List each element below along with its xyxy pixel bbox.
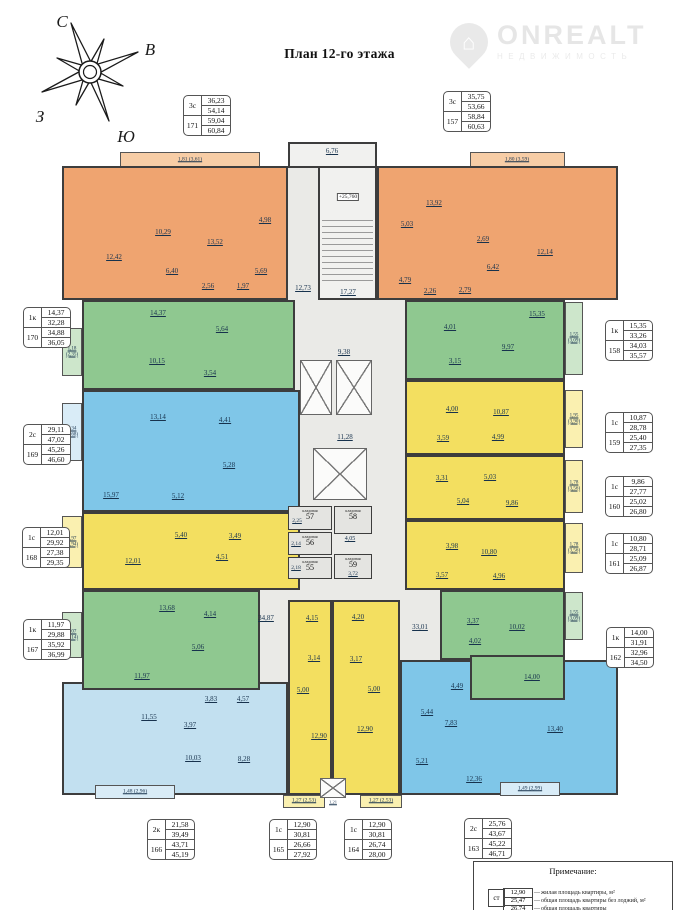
room-area-label: 9,86 (506, 499, 518, 507)
apartment-table-169: 2с169 29,1147,0245,2646,60 (23, 424, 71, 465)
watermark-subtitle: НЕДВИЖИМОСТЬ (497, 52, 647, 61)
area-value: 12,01 (41, 528, 69, 538)
area-value: 25,40 (624, 433, 652, 443)
storage-number: 58 (335, 513, 371, 521)
area-value: 35,75 (462, 92, 490, 102)
area-value: 27,92 (288, 850, 316, 859)
room-area-label: 4,51 (216, 553, 228, 561)
apartment-type: 1с (270, 820, 287, 840)
room-area-label: 3,17 (350, 655, 362, 663)
room-area-label: 11,28 (337, 433, 353, 441)
area-value: 45,22 (483, 839, 511, 849)
floor-plan: кладовая 57 кладовая 58 кладовая 56 клад… (60, 140, 620, 808)
apartment-type: 1к (24, 620, 41, 640)
apartment-table-158: 1к158 15,3533,2634,0335,57 (605, 320, 653, 361)
room-area-label: 4,20 (352, 613, 364, 621)
balcony-area-label: 1,27 (2,53) (292, 798, 316, 804)
room-area-label: 4,98 (259, 216, 271, 224)
room-area-label: 4,02 (469, 637, 481, 645)
area-value: 29,92 (41, 538, 69, 548)
balcony-area-label: 1,95 (3,90) (564, 414, 584, 425)
stair-treads (322, 220, 373, 286)
apartment-unit-170 (82, 300, 295, 390)
apartment-number: 171 (184, 116, 201, 135)
area-value: 35,57 (624, 351, 652, 360)
room-area-label: 5,21 (416, 757, 428, 765)
area-value: 28,78 (624, 423, 652, 433)
apartment-table-171: 3с171 36,2354,1459,0460,84 (183, 95, 231, 136)
area-value: 31,91 (625, 638, 653, 648)
apartment-number: 158 (606, 341, 623, 360)
area-value: 47,02 (42, 435, 70, 445)
room-area-label: 2,56 (202, 282, 214, 290)
apartment-table-165: 1с165 12,9030,8126,6627,92 (269, 819, 317, 860)
apartment-type: 1с (345, 820, 362, 840)
balcony-area-label: 1,80 (3,59) (505, 157, 529, 163)
room-area-label: 4,41 (219, 416, 231, 424)
area-value: 10,80 (624, 534, 652, 544)
balcony-area-label: 1,27 (2,53) (369, 798, 393, 804)
room-area-label: 2,79 (459, 286, 471, 294)
apartment-type: 1с (23, 528, 40, 548)
room-area-label: 2,25 (292, 518, 302, 524)
room-area-label: 14,37 (150, 309, 166, 317)
room-area-label: 6,42 (487, 263, 499, 271)
balcony-area-label: 1,81 (3,61) (178, 157, 202, 163)
room-area-label: 10,80 (481, 548, 497, 556)
room-area-label: 15,35 (529, 310, 545, 318)
area-value: 25,09 (624, 554, 652, 564)
room-area-label: 5,69 (255, 267, 267, 275)
room-area-label: 6,40 (166, 267, 178, 275)
room-area-label: 5,03 (401, 220, 413, 228)
area-value: 36,05 (42, 338, 70, 347)
room-area-label: 2,69 (477, 235, 489, 243)
apartment-number: 169 (24, 445, 41, 464)
area-value: 28,00 (363, 850, 391, 859)
apartment-table-160: 1с160 9,8627,7725,0226,80 (605, 476, 653, 517)
balcony-area-label: 1,49 (2,99) (518, 786, 542, 792)
apartment-table-170: 1к170 14,3732,2834,8836,05 (23, 307, 71, 348)
room-area-label: 5,06 (192, 643, 204, 651)
area-value: 26,87 (624, 564, 652, 573)
room-area-label: 11,55 (141, 713, 157, 721)
balcony-area-label: 1,55 (3,09) (564, 611, 584, 622)
area-value: 30,81 (288, 830, 316, 840)
note-label: общая площадь квартиры без лоджий, м² (541, 898, 646, 904)
room-area-label: 2,18 (291, 565, 301, 571)
area-value: 53,66 (462, 102, 490, 112)
compass-rose: С В З Ю (10, 0, 170, 145)
elevator-shaft-2 (336, 360, 372, 415)
room-area-label: 4,15 (306, 614, 318, 622)
area-value: 34,88 (42, 328, 70, 338)
area-value: 28,71 (624, 544, 652, 554)
apartment-unit-157 (377, 166, 618, 300)
area-value: 36,23 (202, 96, 230, 106)
room-area-label: 8,28 (238, 755, 250, 763)
apartment-number: 160 (606, 497, 623, 516)
room-area-label: 34,87 (258, 614, 274, 622)
room-area-label: 7,83 (445, 719, 457, 727)
area-value: 32,28 (42, 318, 70, 328)
room-area-label: 13,14 (150, 413, 166, 421)
note-label: жилая площадь квартиры, м² (541, 890, 615, 896)
area-value: 9,86 (624, 477, 652, 487)
note-row: 26,74 — общая площадь квартиры (503, 905, 646, 910)
apartment-unit-165 (288, 600, 332, 795)
room-area-label: 3,83 (205, 695, 217, 703)
room-area-label: 3,31 (436, 474, 448, 482)
floor-plan-page: С В З Ю План 12-го этажа ⌂ ONREALT НЕДВИ… (0, 0, 679, 910)
house-icon: ⌂ (462, 31, 475, 53)
room-area-label: 15,97 (103, 491, 119, 499)
area-value: 10,87 (624, 413, 652, 423)
compass-west-label: З (36, 107, 45, 126)
apartment-number: 167 (24, 640, 41, 659)
room-area-label: 5,40 (175, 531, 187, 539)
balcony-area-label: 1,18 (2,35) (62, 347, 82, 358)
area-value: 33,26 (624, 331, 652, 341)
room-area-label: 3,72 (348, 571, 358, 577)
area-value: 54,14 (202, 106, 230, 116)
room-area-label: 12,36 (466, 775, 482, 783)
room-area-label: 12,14 (537, 248, 553, 256)
apartment-type: 2с (24, 425, 41, 445)
leader-arrow: — (534, 906, 540, 910)
area-value: 34,03 (624, 341, 652, 351)
room-area-label: 9,38 (338, 348, 350, 356)
elevation-mark: +25,760 (337, 193, 359, 201)
apartment-table-164: 1с164 12,9030,8126,7428,00 (344, 819, 392, 860)
room-area-label: 3,15 (449, 357, 461, 365)
room-area-label: 4,14 (204, 610, 216, 618)
apartment-type: 1к (606, 321, 623, 341)
room-area-label: 4,00 (446, 405, 458, 413)
apartment-type: 1к (607, 628, 624, 648)
apartment-unit-164 (332, 600, 400, 795)
apartment-number: 159 (606, 433, 623, 452)
elevator-shaft-1 (300, 360, 332, 415)
area-value: 14,37 (42, 308, 70, 318)
area-value: 25,76 (483, 819, 511, 829)
room-area-label: 3,14 (308, 654, 320, 662)
apartment-number: 168 (23, 548, 40, 567)
room-area-label: 12,42 (106, 253, 122, 261)
apartment-number: 165 (270, 840, 287, 859)
area-value: 35,92 (42, 640, 70, 650)
room-area-label: 33,01 (412, 623, 428, 631)
balcony-area-label: 1,55 (3,09) (564, 333, 584, 344)
area-value: 43,67 (483, 829, 511, 839)
room-area-label: 3,98 (446, 542, 458, 550)
apartment-table-167: 1к167 11,9729,8835,9236,99 (23, 619, 71, 660)
apartment-type: 1с (606, 413, 623, 433)
area-value: 26,80 (624, 507, 652, 516)
apartment-unit-171 (62, 166, 288, 300)
room-area-label: 4,57 (237, 695, 249, 703)
area-value: 60,84 (202, 126, 230, 135)
area-value: 60,63 (462, 122, 490, 131)
area-value: 34,50 (625, 658, 653, 667)
apartment-number: 161 (606, 554, 623, 573)
room-area-label: 12,90 (311, 732, 327, 740)
area-value: 36,99 (42, 650, 70, 659)
apartment-table-157: 3с157 35,7553,6658,8460,63 (443, 91, 491, 132)
leader-arrow: — (534, 890, 540, 896)
room-area-label: 13,92 (426, 199, 442, 207)
room-area-label: 5,04 (457, 497, 469, 505)
area-value: 29,35 (41, 558, 69, 567)
area-value: 12,90 (288, 820, 316, 830)
apartment-type: 2с (465, 819, 482, 839)
room-area-label: 5,28 (223, 461, 235, 469)
apartment-table-159: 1с159 10,8728,7825,4027,35 (605, 412, 653, 453)
apartment-type: 2к (148, 820, 165, 840)
service-duct (320, 778, 346, 798)
room-area-label: 17,27 (340, 288, 356, 296)
apartment-type: 3с (444, 92, 461, 112)
room-area-label: 14,00 (524, 673, 540, 681)
room-area-label: 5,00 (297, 686, 309, 694)
area-value: 14,00 (625, 628, 653, 638)
area-value: 21,58 (166, 820, 194, 830)
room-area-label: 3,49 (229, 532, 241, 540)
room-area-label: 5,03 (484, 473, 496, 481)
apartment-table-163: 2с163 25,7643,6745,2246,71 (464, 818, 512, 859)
apartment-unit-162 (440, 590, 565, 660)
room-area-label: 10,87 (493, 408, 509, 416)
area-value: 27,35 (624, 443, 652, 452)
room-area-label: 10,02 (509, 623, 525, 631)
room-area-label: 10,29 (155, 228, 171, 236)
balcony-area-label: 1,48 (2,96) (123, 789, 147, 795)
apartment-unit-166 (62, 682, 288, 795)
apartment-number: 170 (24, 328, 41, 347)
note-value: 26,74 (503, 905, 533, 910)
area-value: 26,66 (288, 840, 316, 850)
onrealt-pin-icon: ⌂ (442, 15, 496, 69)
room-area-label: 3,54 (204, 369, 216, 377)
area-value: 11,97 (42, 620, 70, 630)
room-area-label: 4,01 (444, 323, 456, 331)
area-value: 59,04 (202, 116, 230, 126)
note-title: Примечание: (474, 866, 672, 876)
storage-number: 59 (335, 561, 371, 569)
room-area-label: 10,03 (185, 754, 201, 762)
room-area-label: 13,68 (159, 604, 175, 612)
area-value: 27,77 (624, 487, 652, 497)
area-value: 26,74 (363, 840, 391, 850)
area-value: 46,71 (483, 849, 511, 858)
apartment-number: 163 (465, 839, 482, 858)
watermark-brand: ONREALT (497, 22, 647, 49)
apartment-number: 166 (148, 840, 165, 859)
area-value: 46,60 (42, 455, 70, 464)
apartment-table-166: 2к166 21,5839,4943,7145,19 (147, 819, 195, 860)
apartment-type: 3с (184, 96, 201, 116)
apartment-number: 157 (444, 112, 461, 131)
room-area-label: 13,52 (207, 238, 223, 246)
area-value: 43,71 (166, 840, 194, 850)
apartment-table-161: 1с161 10,8028,7125,0926,87 (605, 533, 653, 574)
onrealt-watermark: ⌂ ONREALT НЕДВИЖИМОСТЬ (450, 22, 647, 61)
room-area-label: 3,97 (184, 721, 196, 729)
apartment-type: 1с (606, 534, 623, 554)
room-area-label: 11,97 (134, 672, 150, 680)
room-area-label: 2,14 (291, 541, 301, 547)
room-area-label: 3,57 (436, 571, 448, 579)
area-value: 30,81 (363, 830, 391, 840)
leader-arrow: — (534, 898, 540, 904)
room-area-label: 5,12 (172, 492, 184, 500)
area-value: 45,19 (166, 850, 194, 859)
area-value: 32,96 (625, 648, 653, 658)
balcony-area-label: 1,78 (3,56) (564, 481, 584, 492)
balcony-area-label: 1,78 (3,56) (564, 543, 584, 554)
area-value: 12,90 (363, 820, 391, 830)
room-area-label: 4,79 (399, 276, 411, 284)
apartment-unit-162-room (470, 655, 565, 700)
room-area-label: 5,64 (216, 325, 228, 333)
room-area-label: 4,49 (451, 682, 463, 690)
room-area-label: 1,97 (237, 282, 249, 290)
room-area-label: 12,01 (125, 557, 141, 565)
room-area-label: 3,37 (467, 617, 479, 625)
note-box: Примечание: ст 12,90 — жилая площадь ква… (473, 861, 673, 910)
room-area-label: 4,96 (493, 572, 505, 580)
room-area-label: 12,90 (357, 725, 373, 733)
area-value: 29,88 (42, 630, 70, 640)
compass-north-label: С (56, 12, 68, 31)
room-area-label: 10,15 (149, 357, 165, 365)
area-value: 39,49 (166, 830, 194, 840)
apartment-table-162: 1к162 14,0031,9132,9634,50 (606, 627, 654, 668)
room-area-label: 5,00 (368, 685, 380, 693)
area-value: 45,26 (42, 445, 70, 455)
area-value: 25,02 (624, 497, 652, 507)
apartment-table-168: 1с168 12,0129,9227,3829,35 (22, 527, 70, 568)
area-value: 15,35 (624, 321, 652, 331)
entrance-vestibule (288, 142, 377, 168)
storage-room-58: кладовая 58 (334, 506, 372, 534)
apartment-type: 1к (24, 308, 41, 328)
room-area-label: 1,21 (329, 799, 337, 805)
room-area-label: 5,44 (421, 708, 433, 716)
room-area-label: 4,99 (492, 433, 504, 441)
note-label: общая площадь квартиры (541, 906, 607, 910)
room-area-label: 9,97 (502, 343, 514, 351)
apartment-unit-159 (405, 380, 565, 455)
room-area-label: 2,26 (424, 287, 436, 295)
room-area-label: 3,59 (437, 434, 449, 442)
room-area-label: 12,73 (295, 284, 311, 292)
apartment-number: 162 (607, 648, 624, 667)
apartment-type: 1с (606, 477, 623, 497)
area-value: 29,11 (42, 425, 70, 435)
room-area-label: 4,05 (345, 536, 356, 542)
area-value: 27,38 (41, 548, 69, 558)
room-area-label: 13,40 (547, 725, 563, 733)
elevator-shaft-3 (313, 448, 367, 500)
room-area-label: 6,76 (326, 147, 338, 155)
apartment-unit-168 (82, 512, 300, 590)
apartment-unit-160 (405, 455, 565, 520)
area-value: 58,84 (462, 112, 490, 122)
apartment-number: 164 (345, 840, 362, 859)
